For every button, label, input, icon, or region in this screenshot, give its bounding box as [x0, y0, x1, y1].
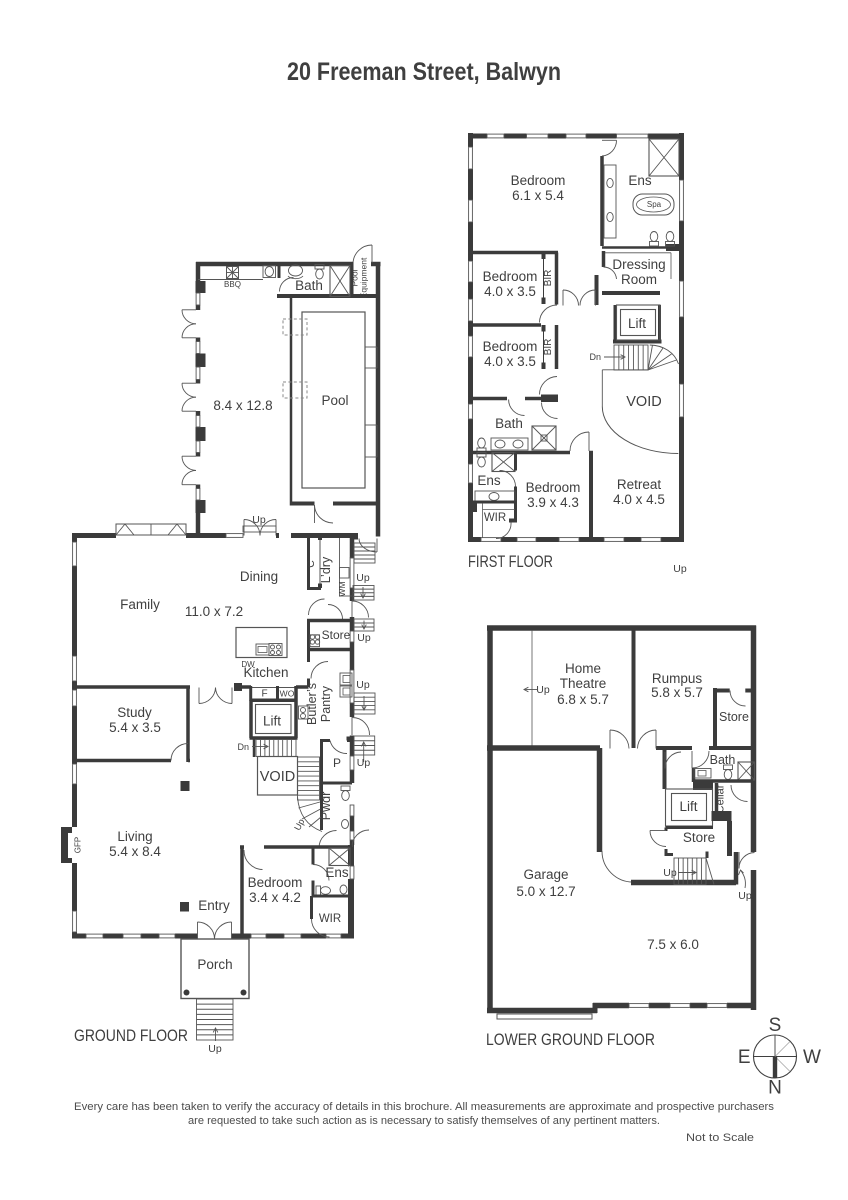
svg-text:S: S [769, 1015, 782, 1036]
svg-text:L’dry: L’dry [319, 556, 333, 583]
svg-text:8.4 x 12.8: 8.4 x 12.8 [213, 398, 272, 413]
svg-text:Entry: Entry [198, 898, 230, 913]
svg-text:6.8 x 5.7: 6.8 x 5.7 [557, 692, 609, 707]
svg-text:Ens: Ens [477, 473, 501, 488]
svg-text:Not to Scale: Not to Scale [686, 1132, 754, 1144]
svg-text:LOWER GROUND FLOOR: LOWER GROUND FLOOR [486, 1031, 655, 1049]
svg-text:WIR: WIR [484, 512, 506, 524]
svg-text:3.9 x 4.3: 3.9 x 4.3 [527, 495, 579, 510]
svg-text:4.0 x 4.5: 4.0 x 4.5 [613, 492, 665, 507]
svg-text:Retreat: Retreat [617, 477, 662, 492]
svg-text:Theatre: Theatre [560, 676, 607, 691]
svg-text:F: F [261, 689, 267, 700]
svg-text:Home: Home [565, 661, 601, 676]
svg-text:are requested to take such act: are requested to take such action as is … [188, 1115, 660, 1127]
svg-text:Dressing: Dressing [612, 257, 665, 272]
svg-text:Family: Family [120, 597, 160, 612]
svg-text:Store: Store [322, 628, 351, 642]
svg-text:Up: Up [536, 684, 550, 696]
svg-text:Lift: Lift [679, 799, 697, 814]
svg-text:Spa: Spa [647, 200, 662, 209]
svg-text:C: C [305, 560, 317, 568]
svg-text:BIR: BIR [543, 339, 554, 356]
svg-text:WO: WO [280, 689, 295, 699]
svg-text:Up: Up [356, 679, 370, 691]
svg-text:4.0 x 3.5: 4.0 x 3.5 [484, 354, 536, 369]
svg-text:Lift: Lift [628, 316, 646, 331]
svg-text:Pwdr: Pwdr [319, 792, 333, 820]
svg-text:Study: Study [117, 705, 152, 720]
svg-text:Store: Store [719, 710, 749, 724]
svg-text:Room: Room [621, 272, 657, 287]
svg-text:6.1 x 5.4: 6.1 x 5.4 [512, 188, 564, 203]
svg-text:WM: WM [337, 581, 347, 596]
svg-text:Rumpus: Rumpus [652, 671, 703, 686]
svg-text:Porch: Porch [197, 957, 232, 972]
svg-text:Kitchen: Kitchen [243, 665, 288, 680]
svg-text:Up: Up [208, 1043, 222, 1055]
svg-text:Lift: Lift [263, 714, 281, 729]
svg-text:Dn: Dn [589, 352, 601, 362]
svg-text:4.0 x 3.5: 4.0 x 3.5 [484, 284, 536, 299]
svg-text:Up: Up [738, 890, 752, 902]
svg-text:Bedroom: Bedroom [483, 269, 538, 284]
svg-text:Bath: Bath [295, 278, 323, 293]
svg-text:Up: Up [356, 572, 370, 584]
svg-text:FIRST FLOOR: FIRST FLOOR [468, 553, 553, 571]
svg-text:7.5 x 6.0: 7.5 x 6.0 [647, 937, 699, 952]
svg-text:BBQ: BBQ [224, 280, 241, 289]
svg-text:P: P [333, 756, 341, 770]
svg-text:W: W [803, 1047, 821, 1068]
svg-text:Up: Up [252, 514, 266, 526]
svg-text:Dining: Dining [240, 569, 278, 584]
svg-text:11.0 x 7.2: 11.0 x 7.2 [185, 604, 243, 619]
svg-text:Store: Store [683, 830, 715, 845]
svg-text:Every care has been taken to v: Every care has been taken to verify the … [74, 1101, 774, 1113]
svg-text:Cellar: Cellar [715, 784, 727, 813]
svg-text:GFP: GFP [74, 837, 83, 853]
svg-text:Garage: Garage [523, 867, 568, 882]
svg-text:Equipment: Equipment [359, 257, 369, 298]
svg-text:Bedroom: Bedroom [511, 173, 566, 188]
svg-text:Ens: Ens [325, 865, 349, 880]
svg-text:VOID: VOID [626, 394, 661, 410]
svg-text:Dn: Dn [237, 742, 249, 752]
svg-text:BIR: BIR [543, 270, 554, 287]
svg-text:VOID: VOID [260, 769, 295, 785]
svg-text:Up: Up [357, 632, 371, 644]
svg-text:Bath: Bath [495, 416, 523, 431]
svg-text:Up: Up [673, 563, 687, 575]
svg-text:5.8 x 5.7: 5.8 x 5.7 [651, 685, 703, 700]
svg-text:3.4 x 4.2: 3.4 x 4.2 [249, 890, 301, 905]
svg-text:Pool: Pool [321, 393, 348, 408]
svg-text:Up: Up [663, 867, 677, 879]
svg-text:Living: Living [117, 829, 152, 844]
svg-text:5.4 x 3.5: 5.4 x 3.5 [109, 720, 161, 735]
svg-text:Bedroom: Bedroom [483, 339, 538, 354]
svg-text:N: N [768, 1078, 782, 1099]
svg-text:5.0 x 12.7: 5.0 x 12.7 [516, 884, 575, 899]
svg-text:Pantry: Pantry [319, 685, 333, 722]
svg-text:20 Freeman Street, Balwyn: 20 Freeman Street, Balwyn [287, 58, 561, 86]
svg-text:Bedroom: Bedroom [526, 480, 581, 495]
svg-text:5.4 x 8.4: 5.4 x 8.4 [109, 844, 161, 859]
svg-text:Bedroom: Bedroom [248, 875, 303, 890]
svg-text:GROUND FLOOR: GROUND FLOOR [74, 1027, 188, 1045]
svg-text:Ens: Ens [628, 173, 652, 188]
svg-text:WIR: WIR [319, 913, 341, 925]
svg-text:E: E [738, 1047, 751, 1068]
